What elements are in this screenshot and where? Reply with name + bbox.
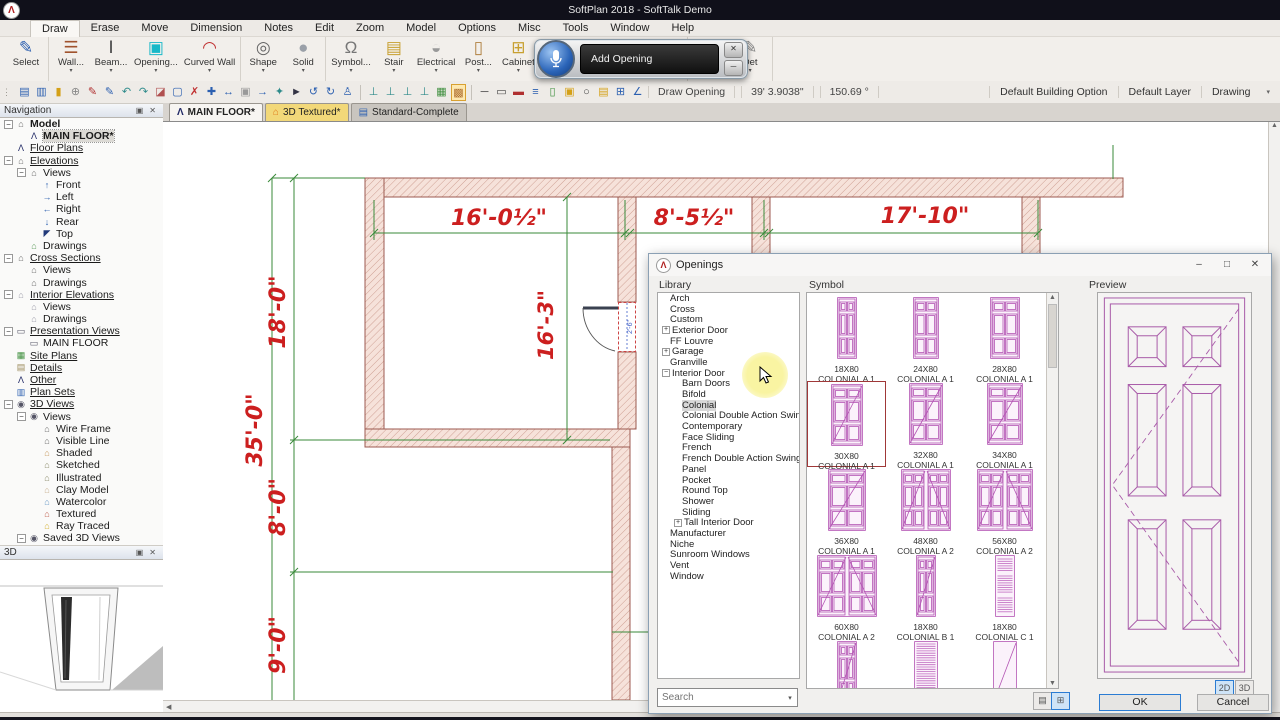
arrow-right-blue-icon[interactable]: → (255, 84, 270, 101)
door-opening: 2'-6" (583, 303, 636, 352)
nav-item-ray-traced[interactable]: ⌂Ray Traced (0, 520, 163, 532)
save-icon[interactable]: ▤ (17, 84, 32, 101)
corner-icon: ◤ (41, 228, 53, 239)
menu-tab-zoom[interactable]: Zoom (345, 20, 395, 37)
menu-tab-erase[interactable]: Erase (80, 20, 131, 37)
door-glyph (837, 297, 857, 364)
curved-wall-icon: ◠ (202, 38, 217, 58)
image-icon[interactable]: ▣ (238, 84, 253, 101)
house-icon: ⌂ (15, 119, 27, 129)
menu-tab-notes[interactable]: Notes (253, 20, 304, 37)
door-glyph (914, 641, 938, 689)
preview-pane (1097, 292, 1252, 679)
house-water-icon: ⌂ (41, 497, 53, 507)
symbol-list: 18X80COLONIAL A 124X80COLONIAL A 128X80C… (806, 292, 1059, 689)
wall-icon: ☰ (63, 38, 78, 58)
library-item-tall-interior-door[interactable]: +Tall Interior Door (658, 517, 799, 528)
move-icon[interactable]: ✚ (204, 84, 219, 101)
nav-item-front[interactable]: ↑Front (0, 179, 163, 191)
menu-tab-dimension[interactable]: Dimension (179, 20, 253, 37)
document-tab-strip: ΛMAIN FLOOR*⌂3D Textured*▤Standard-Compl… (163, 103, 1280, 122)
ribbon-wall-button[interactable]: ☰Wall...▾ (51, 37, 91, 81)
ribbon-post-button[interactable]: ▯Post...▾ (458, 37, 498, 81)
ribbon-stair-button[interactable]: ▤Stair▾ (374, 37, 414, 81)
door-glyph (837, 641, 857, 689)
softplan-logo-icon: Λ (656, 258, 671, 273)
chevron-down-icon: ▾ (208, 68, 211, 74)
chevron-down-icon[interactable]: ▾ (1260, 88, 1276, 96)
expand-icon[interactable]: + (662, 348, 670, 356)
house-icon: ⌂ (28, 168, 40, 178)
svg-text:16'-3": 16'-3" (534, 290, 558, 360)
expand-icon[interactable]: + (662, 326, 670, 334)
rotate-ccw-icon[interactable]: ↺ (306, 84, 321, 101)
door-glyph (909, 383, 943, 450)
symbol-icon: Ω (345, 38, 358, 58)
collapse-icon[interactable]: − (17, 412, 26, 421)
status-angle: 150.69 ° (820, 86, 879, 98)
nav-item-left[interactable]: →Left (0, 191, 163, 203)
symbol-symbol-item[interactable] (886, 639, 965, 689)
library-item-face-sliding[interactable]: Face Sliding (658, 432, 799, 443)
clamp-icon[interactable]: ⊕ (68, 84, 83, 101)
nav-item-views[interactable]: −⌂Views (0, 167, 163, 179)
3d-preview-panel[interactable] (0, 560, 164, 712)
chevron-down-icon: ▾ (109, 68, 112, 74)
status-length: 39' 3.9038" (741, 86, 813, 98)
house-lt-icon: ⌂ (28, 302, 40, 312)
region-icon[interactable]: ▢ (170, 84, 185, 101)
post-icon: ▯ (474, 38, 483, 58)
menu-tab-window[interactable]: Window (599, 20, 660, 37)
library-item-french[interactable]: French (658, 443, 799, 454)
preview-door (1098, 293, 1251, 678)
menu-tab-draw[interactable]: Draw (30, 20, 80, 38)
collapse-icon[interactable]: − (4, 290, 13, 299)
house-sketch-icon: ⌂ (41, 473, 53, 483)
application-window: Λ SoftPlan 2018 - SoftTalk Demo DrawEras… (0, 0, 1280, 720)
level-c-icon[interactable]: ⊥ (400, 84, 415, 101)
cancel-button[interactable]: Cancel (1197, 694, 1269, 711)
collapse-icon[interactable]: − (4, 400, 13, 409)
library-item-contemporary[interactable]: Contemporary (658, 421, 799, 432)
save-all-icon[interactable]: ▥ (34, 84, 49, 101)
mouse-cursor-icon (759, 366, 773, 386)
nav-item-watercolor[interactable]: ⌂Watercolor (0, 496, 163, 508)
search-combobox[interactable]: ▾ (657, 688, 798, 707)
quick-icons: ▤▥▮⊕✎✎↶↷◪▢✗✚↔▣→✦►↺↻♙⊥⊥⊥⊥▦▩─▭▬≡▯▣○▤⊞∠ (13, 84, 646, 101)
nav-item-model[interactable]: −⌂Model (0, 118, 163, 130)
eraser-icon[interactable]: ◪ (153, 84, 168, 101)
arrow-down-icon: ↓ (41, 217, 53, 227)
symbol-56x80-colonial-a-2[interactable]: 56X80COLONIAL A 2 (965, 467, 1044, 553)
door-glyph (990, 297, 1020, 364)
close-icon[interactable]: ✕ (146, 548, 159, 557)
logo-icon: Λ (15, 143, 27, 153)
toolbar-grip: ⋮ (2, 87, 11, 98)
undo-icon[interactable]: ↶ (119, 84, 134, 101)
house-icon: ⌂ (41, 436, 53, 446)
nav-item-main-floor[interactable]: ΛMAIN FLOOR* (0, 130, 163, 142)
symbol-18x80-colonial-b-1[interactable]: 18X80COLONIAL B 1 (886, 553, 965, 639)
nav-item-drawings[interactable]: ⌂Drawings (0, 276, 163, 288)
rect-icon[interactable]: ▭ (494, 84, 509, 101)
house-icon: ⌂ (41, 424, 53, 434)
stack-blue-icon[interactable]: ≡ (528, 84, 543, 101)
symbol-36x80-colonial-a-1[interactable]: 36X80COLONIAL A 1 (807, 467, 886, 553)
svg-text:17'-10": 17'-10" (881, 204, 970, 229)
collapse-icon[interactable]: − (4, 156, 13, 165)
pin-icon[interactable]: ▣ (133, 106, 147, 115)
door-glyph (977, 469, 1033, 536)
svg-text:18'-0": 18'-0" (266, 275, 291, 348)
library-item-ff-louvre[interactable]: FF Louvre (658, 336, 799, 347)
nav-item-floor-plans[interactable]: ΛFloor Plans (0, 142, 163, 154)
ribbon-shape-button[interactable]: ◎Shape▾ (243, 37, 283, 81)
nav-item-views[interactable]: −◉Views (0, 411, 163, 423)
eye-icon: ◉ (15, 399, 27, 410)
close-button[interactable]: ✕ (1241, 256, 1269, 274)
house-icon: ⌂ (28, 278, 40, 288)
opening-icon: ▣ (148, 38, 164, 58)
nav-item-drawings[interactable]: ⌂Drawings (0, 313, 163, 325)
level-b-icon[interactable]: ⊥ (383, 84, 398, 101)
search-input[interactable] (658, 692, 783, 703)
monitor-icon: ▭ (15, 326, 27, 337)
ribbon-solid-button[interactable]: ●Solid▾ (283, 37, 323, 81)
chevron-down-icon: ▾ (392, 68, 395, 74)
shape-icon: ◎ (256, 38, 271, 58)
library-tree: ArchCrossCustom+Exterior DoorFF Louvre+G… (657, 292, 800, 679)
chevron-down-icon: ▾ (435, 68, 438, 74)
symbol-grid: 18X80COLONIAL A 124X80COLONIAL A 128X80C… (807, 295, 1045, 689)
grid-multi-icon[interactable]: ▩ (451, 84, 466, 101)
library-item-round-top[interactable]: Round Top (658, 485, 799, 496)
list-view-toggle[interactable]: ▤ (1033, 692, 1052, 710)
nav-item-views[interactable]: ⌂Views (0, 301, 163, 313)
ribbon-curved-wall-button[interactable]: ◠Curved Wall▾ (181, 37, 238, 81)
library-item-colonial[interactable]: Colonial (658, 400, 799, 411)
library-item-panel[interactable]: Panel (658, 464, 799, 475)
menu-tab-tools[interactable]: Tools (552, 20, 600, 37)
banding-gold-icon[interactable]: ▤ (596, 84, 611, 101)
logo-icon: Λ (28, 131, 40, 141)
door-glyph (987, 383, 1023, 450)
arrow-right-icon: → (41, 192, 53, 202)
monitor-icon: ▭ (28, 338, 40, 349)
library-item-pocket[interactable]: Pocket (658, 475, 799, 486)
close-icon[interactable]: ✕ (146, 106, 159, 115)
menu-tab-bar: DrawEraseMoveDimensionNotesEditZoomModel… (0, 20, 1280, 37)
house-sketch-icon: ⌂ (41, 460, 53, 470)
symbol-34x80-colonial-a-1[interactable]: 34X80COLONIAL A 1 (965, 381, 1044, 467)
library-item-arch[interactable]: Arch (658, 293, 799, 304)
ribbon-select-button[interactable]: ✎Select (6, 37, 46, 81)
nav-item-site-plans[interactable]: ▦Site Plans (0, 350, 163, 362)
openings-dialog: Λ Openings – □ ✕ Library ArchCrossCustom… (648, 253, 1272, 714)
eye-icon: ◉ (28, 533, 40, 544)
symbol-18x80-colonial-c-1[interactable]: 18X80COLONIAL C 1 (965, 553, 1044, 639)
dialog-title: Openings (676, 259, 723, 271)
collapse-icon[interactable]: − (17, 168, 26, 177)
library-item-cross[interactable]: Cross (658, 304, 799, 315)
symbol-24x80-colonial-a-1[interactable]: 24X80COLONIAL A 1 (886, 295, 965, 381)
chevron-down-icon: ▾ (749, 68, 752, 74)
preview-group-label: Preview (1089, 279, 1126, 291)
svg-text:35'-0": 35'-0" (243, 393, 268, 466)
nav-item-plan-sets[interactable]: ▥Plan Sets (0, 386, 163, 398)
menu-tab-model[interactable]: Model (395, 20, 447, 37)
chevron-down-icon[interactable]: ▾ (783, 694, 797, 702)
symbol-30x80-colonial-a-1[interactable]: 30X80COLONIAL A 1 (807, 381, 886, 467)
chevron-down-icon: ▾ (154, 68, 157, 74)
walk-icon[interactable]: ✦ (272, 84, 287, 101)
nav-item-cross-sections[interactable]: −⌂Cross Sections (0, 252, 163, 264)
navigation-tree: −⌂ModelΛMAIN FLOOR*ΛFloor Plans−⌂Elevati… (0, 118, 164, 545)
chevron-down-icon: ▾ (517, 68, 520, 74)
pen-blue-icon[interactable]: ✎ (102, 84, 117, 101)
house-clay-icon: ⌂ (41, 485, 53, 495)
nav-item-3d-views[interactable]: −◉3D Views (0, 398, 163, 410)
ribbon-symbol-button[interactable]: ΩSymbol...▾ (328, 37, 374, 81)
details-icon: ▤ (15, 362, 27, 373)
minimize-button[interactable]: – (1185, 256, 1213, 274)
nav-item-drawings[interactable]: ⌂Drawings (0, 240, 163, 252)
house-lt-icon: ⌂ (28, 314, 40, 324)
door-glyph (828, 469, 866, 536)
menu-tab-options[interactable]: Options (447, 20, 507, 37)
house-red-icon: ⌂ (41, 509, 53, 519)
library-group-label: Library (659, 279, 691, 291)
site-icon: ▦ (15, 350, 27, 361)
collapse-icon[interactable]: − (662, 369, 670, 377)
toolbar-separator (471, 85, 472, 100)
stair-icon: ▤ (386, 38, 402, 58)
nav-item-details[interactable]: ▤Details (0, 362, 163, 374)
symbol-group-label: Symbol (809, 279, 844, 291)
beam-icon: Ⅰ (108, 38, 113, 58)
symbol-28x80-colonial-a-1[interactable]: 28X80COLONIAL A 1 (965, 295, 1044, 381)
door-glyph (916, 555, 936, 622)
door-glyph (913, 297, 939, 364)
redo-icon[interactable]: ↷ (136, 84, 151, 101)
dt-house-icon: ⌂ (273, 107, 279, 118)
door-glyph (995, 555, 1015, 622)
nav-item-views[interactable]: ⌂Views (0, 264, 163, 276)
plansets-icon: ▥ (15, 387, 27, 398)
house-icon: ⌂ (15, 253, 27, 263)
grid-plus-icon[interactable]: ⊞ (613, 84, 628, 101)
symbol-symbol-item[interactable] (965, 639, 1044, 689)
svg-text:9'-0": 9'-0" (266, 616, 291, 674)
nav-item-elevations[interactable]: −⌂Elevations (0, 155, 163, 167)
microphone-icon (548, 49, 564, 69)
default-layer-button[interactable]: Default Layer (1118, 86, 1201, 98)
status-mode: Draw Opening (648, 86, 735, 98)
3d-panel-title: 3D (4, 547, 17, 558)
symbol-32x80-colonial-a-1[interactable]: 32X80COLONIAL A 1 (886, 381, 965, 467)
library-item-french-double-action-swing[interactable]: French Double Action Swing (658, 453, 799, 464)
symbol-symbol-item[interactable] (807, 639, 886, 689)
title-bar: Λ SoftPlan 2018 - SoftTalk Demo (0, 0, 1280, 20)
nav-item-presentation-views[interactable]: −▭Presentation Views (0, 325, 163, 337)
electrical-icon: ◒ (431, 38, 441, 58)
library-item-sliding[interactable]: Sliding (658, 507, 799, 518)
svg-text:8'-5½": 8'-5½" (654, 206, 735, 231)
default-building-option-button[interactable]: Default Building Option (989, 86, 1117, 98)
cabinet-gold-icon[interactable]: ▣ (562, 84, 577, 101)
pin-icon[interactable]: ▣ (133, 548, 147, 557)
grid-view-toggle[interactable]: ⊞ (1051, 692, 1070, 710)
house-gold-icon: ⌂ (41, 521, 53, 531)
nav-item-wire-frame[interactable]: ⌂Wire Frame (0, 423, 163, 435)
voice-command-label: Add Opening (580, 44, 719, 74)
cabinet-icon: ⊞ (511, 38, 525, 58)
nav-item-clay-model[interactable]: ⌂Clay Model (0, 484, 163, 496)
door-glyph (817, 555, 877, 622)
delete-icon[interactable]: ✗ (187, 84, 202, 101)
circle-icon[interactable]: ○ (579, 84, 594, 101)
chevron-down-icon: ▾ (262, 68, 265, 74)
door-glyph (901, 469, 951, 536)
angle-icon[interactable]: ∠ (630, 84, 645, 101)
nav-item-visible-line[interactable]: ⌂Visible Line (0, 435, 163, 447)
dialog-title-bar[interactable]: Λ Openings (649, 254, 1271, 276)
ribbon-opening-button[interactable]: ▣Opening...▾ (131, 37, 181, 81)
scrollbar-thumb[interactable] (1048, 304, 1057, 368)
nav-item-textured[interactable]: ⌂Textured (0, 508, 163, 520)
lock-icon[interactable]: ▮ (51, 84, 66, 101)
maximize-button[interactable]: □ (1213, 256, 1241, 274)
menu-tab-misc[interactable]: Misc (507, 20, 552, 37)
library-item-custom[interactable]: Custom (658, 314, 799, 325)
solid-icon: ● (298, 38, 308, 58)
arrow-left-icon: ← (41, 204, 53, 214)
expand-icon[interactable]: + (674, 519, 682, 527)
scroll-left-icon[interactable]: ◀ (163, 703, 171, 711)
nav-item-main-floor[interactable]: ▭MAIN FLOOR (0, 337, 163, 349)
collapse-icon[interactable]: − (17, 534, 26, 543)
logo-icon: Λ (15, 375, 27, 385)
house-lt-icon: ⌂ (15, 290, 27, 300)
toolbar-separator (360, 85, 361, 100)
ribbon-beam-button[interactable]: ⅠBeam...▾ (91, 37, 131, 81)
door-glyph (831, 384, 863, 451)
menu-tab-edit[interactable]: Edit (304, 20, 345, 37)
house-icon: ⌂ (28, 265, 40, 275)
library-item-exterior-door[interactable]: +Exterior Door (658, 325, 799, 336)
overlay-minimize-button[interactable]: ─ (724, 60, 743, 76)
nav-item-right[interactable]: ←Right (0, 203, 163, 215)
collapse-icon[interactable]: − (4, 327, 13, 336)
eye-icon: ◉ (28, 411, 40, 422)
ribbon-electrical-button[interactable]: ◒Electrical▾ (414, 37, 459, 81)
select-icon: ✎ (19, 38, 33, 58)
library-item-shower[interactable]: Shower (658, 496, 799, 507)
house-green-icon: ⌂ (28, 241, 40, 251)
nav-item-sketched[interactable]: ⌂Sketched (0, 459, 163, 471)
symbol-48x80-colonial-a-2[interactable]: 48X80COLONIAL A 2 (886, 467, 965, 553)
level-a-icon[interactable]: ⊥ (366, 84, 381, 101)
svg-text:2'-6": 2'-6" (627, 320, 634, 334)
chevron-down-icon: ▾ (350, 68, 353, 74)
nav-item-rear[interactable]: ↓Rear (0, 216, 163, 228)
library-item-sunroom-windows[interactable]: Sunroom Windows (658, 550, 799, 561)
house-icon: ⌂ (15, 156, 27, 166)
line-icon[interactable]: ─ (477, 84, 492, 101)
pointer-icon[interactable]: ► (289, 84, 304, 101)
rotate-cw-icon[interactable]: ↻ (323, 84, 338, 101)
chevron-down-icon: ▾ (477, 68, 480, 74)
doc-tab-3d-textured[interactable]: ⌂3D Textured* (265, 103, 349, 121)
doc-tab-main-floor[interactable]: ΛMAIN FLOOR* (169, 103, 263, 121)
column-green-icon[interactable]: ▯ (545, 84, 560, 101)
collapse-icon[interactable]: − (4, 120, 13, 129)
nav-item-shaded[interactable]: ⌂Shaded (0, 447, 163, 459)
menu-tab-help[interactable]: Help (660, 20, 705, 37)
window-title: SoftPlan 2018 - SoftTalk Demo (0, 4, 1280, 16)
scroll-down-icon[interactable]: ▼ (1047, 680, 1058, 687)
nav-item-interior-elevations[interactable]: −⌂Interior Elevations (0, 289, 163, 301)
person-icon[interactable]: ♙ (340, 84, 355, 101)
nav-item-saved-3d-views[interactable]: −◉Saved 3D Views (0, 532, 163, 544)
navigation-panel-title: Navigation (4, 105, 51, 116)
microphone-button[interactable] (537, 40, 575, 78)
doc-tabs: ΛMAIN FLOOR*⌂3D Textured*▤Standard-Compl… (169, 103, 469, 121)
chevron-down-icon: ▾ (302, 68, 305, 74)
nav-item-illustrated[interactable]: ⌂Illustrated (0, 471, 163, 483)
library-item-manufacturer[interactable]: Manufacturer (658, 528, 799, 539)
collapse-icon[interactable]: − (4, 254, 13, 263)
door-glyph (993, 641, 1017, 689)
symbol-60x80-colonial-a-2[interactable]: 60X80COLONIAL A 2 (807, 553, 886, 639)
doc-tab-standard-complete[interactable]: ▤Standard-Complete (351, 103, 467, 121)
nav-item-top[interactable]: ◤Top (0, 228, 163, 240)
library-item-window[interactable]: Window (658, 571, 799, 582)
menu-tab-move[interactable]: Move (130, 20, 179, 37)
brush-red-icon[interactable]: ✎ (85, 84, 100, 101)
ribbon-cabinet-button[interactable]: ⊞Cabinet▾ (498, 37, 538, 81)
navigation-panel-header: Navigation ▣ ✕ (0, 103, 163, 118)
menu-tabs: DrawEraseMoveDimensionNotesEditZoomModel… (30, 20, 705, 36)
dt-book-icon: ▤ (359, 107, 368, 118)
drawing-mode-button[interactable]: Drawing (1201, 86, 1261, 98)
house-shaded-icon: ⌂ (41, 448, 53, 458)
level-d-icon[interactable]: ⊥ (417, 84, 432, 101)
symbol-scrollbar[interactable]: ▲ ▼ (1046, 293, 1058, 688)
arrow-up-icon: ↑ (41, 180, 53, 190)
quick-access-toolbar: ⋮ ▤▥▮⊕✎✎↶↷◪▢✗✚↔▣→✦►↺↻♙⊥⊥⊥⊥▦▩─▭▬≡▯▣○▤⊞∠ D… (0, 81, 1280, 104)
softtalk-voice-overlay: Add Opening ✕ ─ (534, 39, 748, 79)
svg-text:16'-0½": 16'-0½" (451, 206, 547, 231)
3d-panel-header: 3D ▣ ✕ (0, 545, 163, 560)
library-item-colonial-double-action-swing[interactable]: Colonial Double Action Swing (658, 411, 799, 422)
scroll-up-icon[interactable]: ▲ (1047, 294, 1058, 301)
chevron-down-icon: ▾ (69, 68, 72, 74)
nav-item-other[interactable]: ΛOther (0, 374, 163, 386)
symbol-18x80-colonial-a-1[interactable]: 18X80COLONIAL A 1 (807, 295, 886, 381)
svg-text:8'-0": 8'-0" (266, 478, 291, 536)
pan-icon[interactable]: ↔ (221, 84, 236, 101)
library-item-niche[interactable]: Niche (658, 539, 799, 550)
wall-red-icon[interactable]: ▬ (511, 84, 526, 101)
library-item-vent[interactable]: Vent (658, 560, 799, 571)
grid-green-icon[interactable]: ▦ (434, 84, 449, 101)
overlay-close-button[interactable]: ✕ (724, 42, 743, 58)
3d-door-view (0, 560, 163, 712)
context-buttons: Default Building Option Default Layer Dr… (989, 81, 1276, 103)
ok-button[interactable]: OK (1099, 694, 1181, 711)
